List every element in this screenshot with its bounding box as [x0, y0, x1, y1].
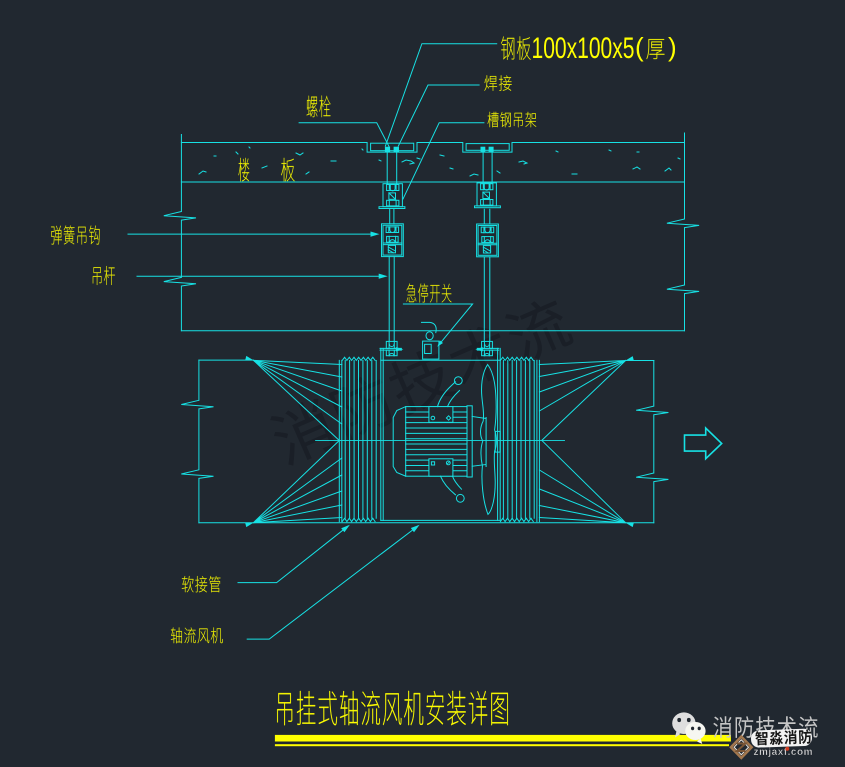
- svg-text:(: (: [635, 32, 644, 62]
- svg-text:): ): [668, 32, 677, 62]
- svg-text:100x100x5: 100x100x5: [532, 32, 635, 65]
- svg-text:zmjaxf.com: zmjaxf.com: [754, 747, 813, 758]
